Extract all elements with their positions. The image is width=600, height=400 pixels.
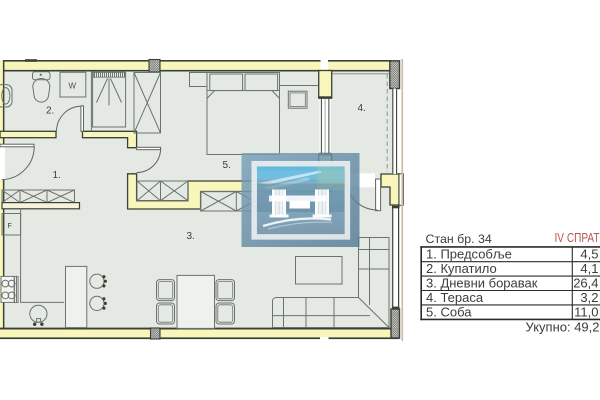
svg-text:W: W (69, 82, 77, 91)
svg-text:1. Предсобље: 1. Предсобље (426, 247, 512, 262)
svg-text:4.: 4. (358, 103, 366, 114)
svg-text:2.: 2. (46, 106, 54, 117)
svg-text:3.: 3. (187, 231, 195, 242)
svg-text:3,2: 3,2 (580, 290, 598, 305)
svg-text:2. Купатило: 2. Купатило (426, 261, 497, 276)
svg-text:F: F (8, 223, 12, 230)
svg-text:11,0: 11,0 (574, 304, 598, 319)
svg-text:Укупно: 49,2: Укупно: 49,2 (526, 320, 600, 335)
svg-text:Стан бр. 34: Стан бр. 34 (426, 232, 492, 246)
svg-text:IV СПРАТ: IV СПРАТ (555, 231, 600, 245)
svg-text:4,1: 4,1 (580, 261, 598, 276)
svg-text:26,4: 26,4 (573, 276, 598, 291)
svg-text:5. Соба: 5. Соба (426, 304, 472, 319)
svg-text:4. Тераса: 4. Тераса (426, 290, 484, 305)
svg-text:5.: 5. (223, 160, 231, 171)
svg-text:4,5: 4,5 (580, 247, 598, 262)
svg-text:1.: 1. (53, 170, 61, 181)
svg-text:3. Дневни боравак: 3. Дневни боравак (426, 276, 538, 291)
